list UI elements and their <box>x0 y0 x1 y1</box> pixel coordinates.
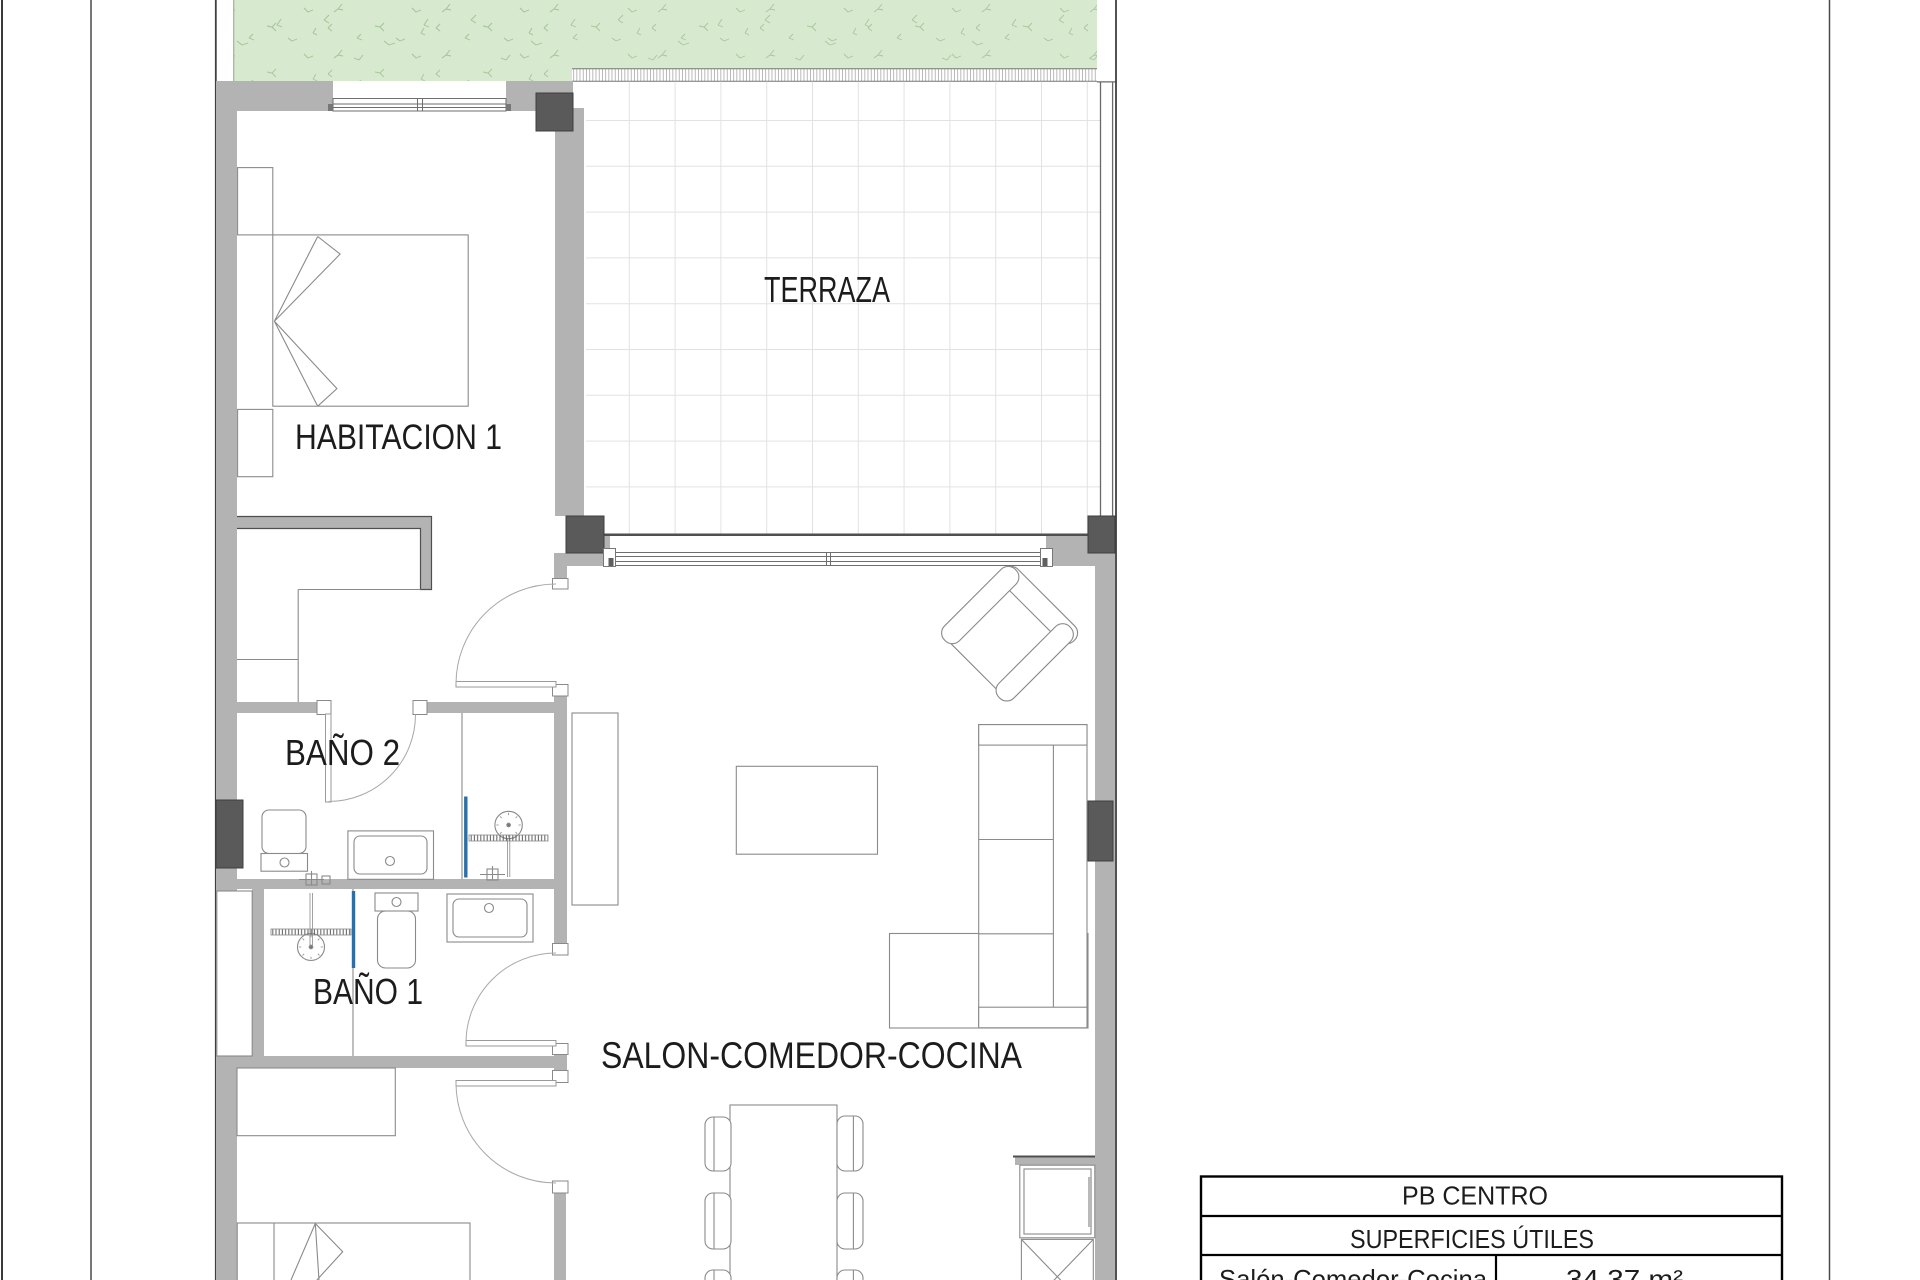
svg-text:TERRAZA: TERRAZA <box>764 269 890 310</box>
svg-text:BAÑO 1: BAÑO 1 <box>313 971 423 1012</box>
svg-text:SUPERFICIES ÚTILES: SUPERFICIES ÚTILES <box>1350 1224 1594 1254</box>
svg-text:HABITACION 1: HABITACION 1 <box>295 418 502 457</box>
svg-text:BAÑO 2: BAÑO 2 <box>285 732 400 773</box>
svg-text:SALON-COMEDOR-COCINA: SALON-COMEDOR-COCINA <box>601 1035 1022 1076</box>
svg-text:PB CENTRO: PB CENTRO <box>1402 1181 1548 1211</box>
svg-text:Salón-Comedor-Cocina: Salón-Comedor-Cocina <box>1219 1264 1488 1280</box>
svg-text:34,37 m²: 34,37 m² <box>1566 1264 1683 1280</box>
